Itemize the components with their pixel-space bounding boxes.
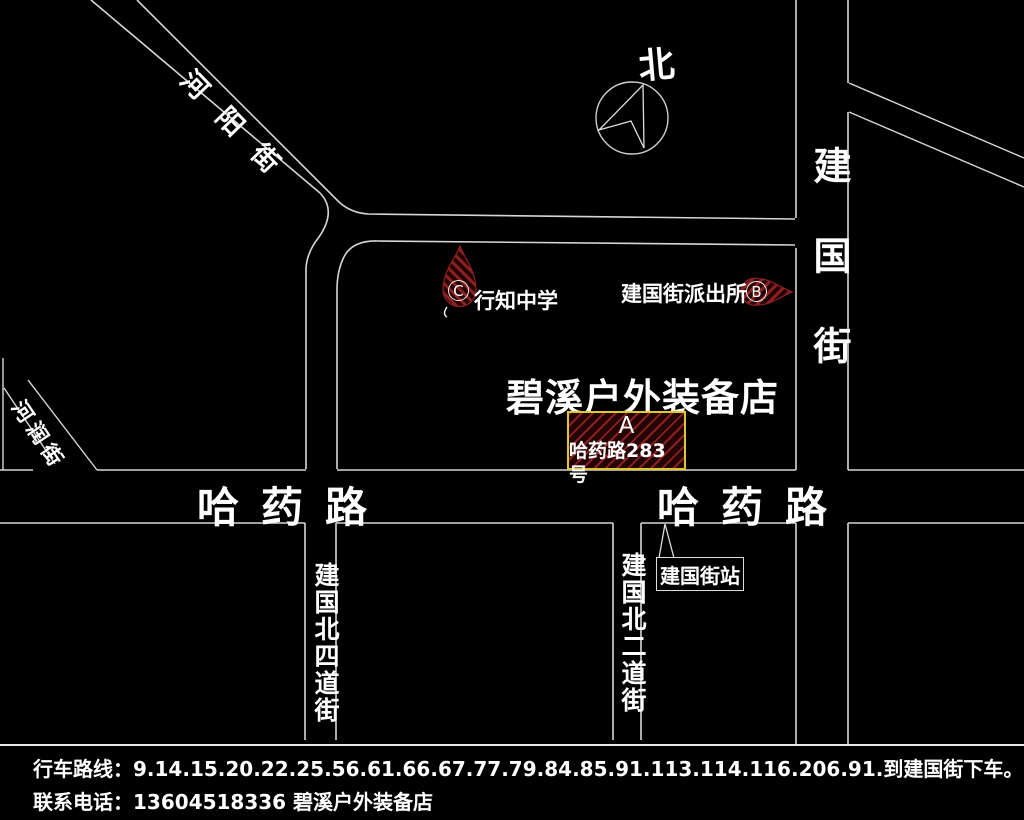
- compass-circle-icon: [596, 82, 668, 154]
- north-arrow-icon: [599, 85, 644, 148]
- street-label-hayao-east: 哈药路: [657, 474, 849, 535]
- poi-label-jianguo-police: 建国街派出所: [621, 278, 747, 308]
- marker-a-letter: A: [619, 413, 635, 439]
- poi-label-xingzhi-school: 行知中学: [474, 285, 558, 315]
- map-canvas: 北 河阳街 河润街 建国街 哈药路 哈药路 建国北四道街 建国北二道街 C 行知…: [0, 0, 1024, 820]
- marker-c-letter: C: [448, 280, 469, 301]
- station-callout: 建国街站: [656, 557, 744, 591]
- road-horizontal-bottom-line-into-vertical: [337, 241, 795, 469]
- street-label-jianguo: 建国街: [802, 146, 857, 416]
- street-label-jianguo-north-4th: 建国北四道街: [307, 562, 343, 724]
- marker-c-tick: [445, 307, 448, 317]
- street-label-hayao-west: 哈药路: [197, 474, 389, 535]
- street-label-jianguo-north-2nd: 建国北二道街: [614, 552, 650, 714]
- marker-b-letter: B: [746, 281, 767, 302]
- road-topright-diagonal: [849, 83, 1024, 187]
- contact-info: 联系电话：13604518336 碧溪户外装备店: [33, 786, 433, 815]
- north-label: 北: [636, 35, 676, 90]
- store-address: 哈药路283号: [569, 439, 684, 487]
- store-address-box: A 哈药路283号: [567, 411, 686, 470]
- route-info: 行车路线：9.14.15.20.22.25.56.61.66.67.77.79.…: [33, 753, 1024, 782]
